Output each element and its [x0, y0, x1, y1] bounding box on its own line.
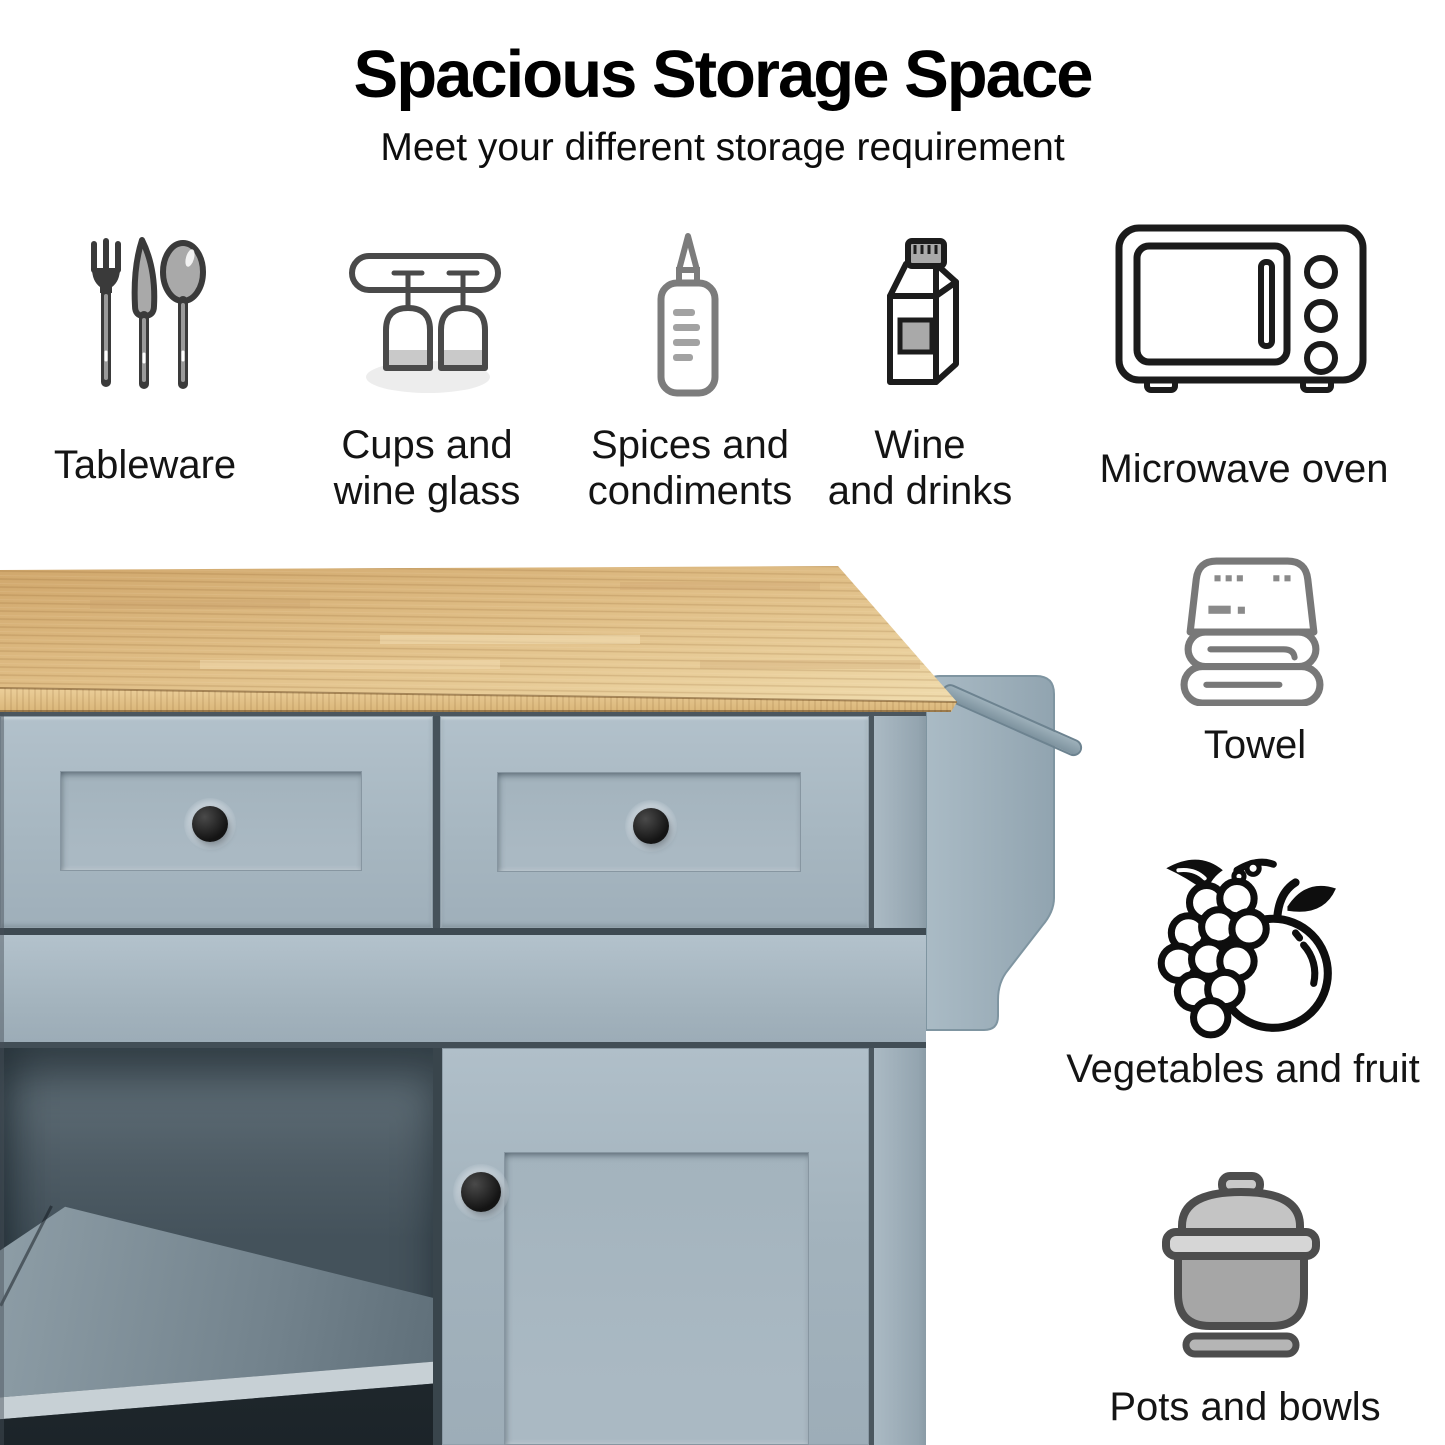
vegetables-fruit-label: Vegetables and fruit — [1038, 1046, 1445, 1092]
towel-icon — [1180, 552, 1324, 706]
tableware-label: Tableware — [18, 442, 272, 488]
drink-carton-icon — [872, 236, 970, 394]
drawer-left-knob — [192, 806, 228, 842]
drawer-right-knob — [633, 808, 669, 844]
cabinet-left-edge-shadow — [0, 712, 4, 1445]
drawer-bottom-gap — [0, 928, 926, 935]
squeeze-bottle-icon — [648, 230, 728, 402]
cabinet-apron-rail — [0, 935, 926, 1042]
page-title: Spacious Storage Space — [0, 36, 1445, 113]
towel-rack-bracket — [926, 672, 1076, 1034]
wine-glass-rack-icon — [346, 246, 506, 396]
door-knob — [461, 1172, 501, 1212]
microwave-oven-icon — [1114, 224, 1368, 406]
cabinet-right-stile — [874, 716, 926, 1445]
drawer-divider-gap — [433, 716, 440, 928]
door-right-gap — [869, 1048, 874, 1445]
pots-bowls-label: Pots and bowls — [1058, 1384, 1432, 1430]
door-left-gap — [433, 1048, 442, 1445]
cabinet-door-panel — [504, 1152, 809, 1445]
cutlery-icon — [80, 234, 208, 408]
microwave-oven-label: Microwave oven — [1086, 446, 1402, 492]
fruits-icon — [1136, 844, 1346, 1042]
towel-label: Towel — [1148, 722, 1362, 768]
wood-countertop — [0, 540, 1100, 720]
page-subtitle: Meet your different storage requirement — [0, 126, 1445, 170]
cups-wine-glass-label: Cups and wine glass — [290, 422, 564, 514]
infographic-canvas: Spacious Storage Space Meet your differe… — [0, 0, 1445, 1445]
pot-icon — [1152, 1168, 1332, 1362]
wine-drinks-label: Wine and drinks — [788, 422, 1052, 514]
